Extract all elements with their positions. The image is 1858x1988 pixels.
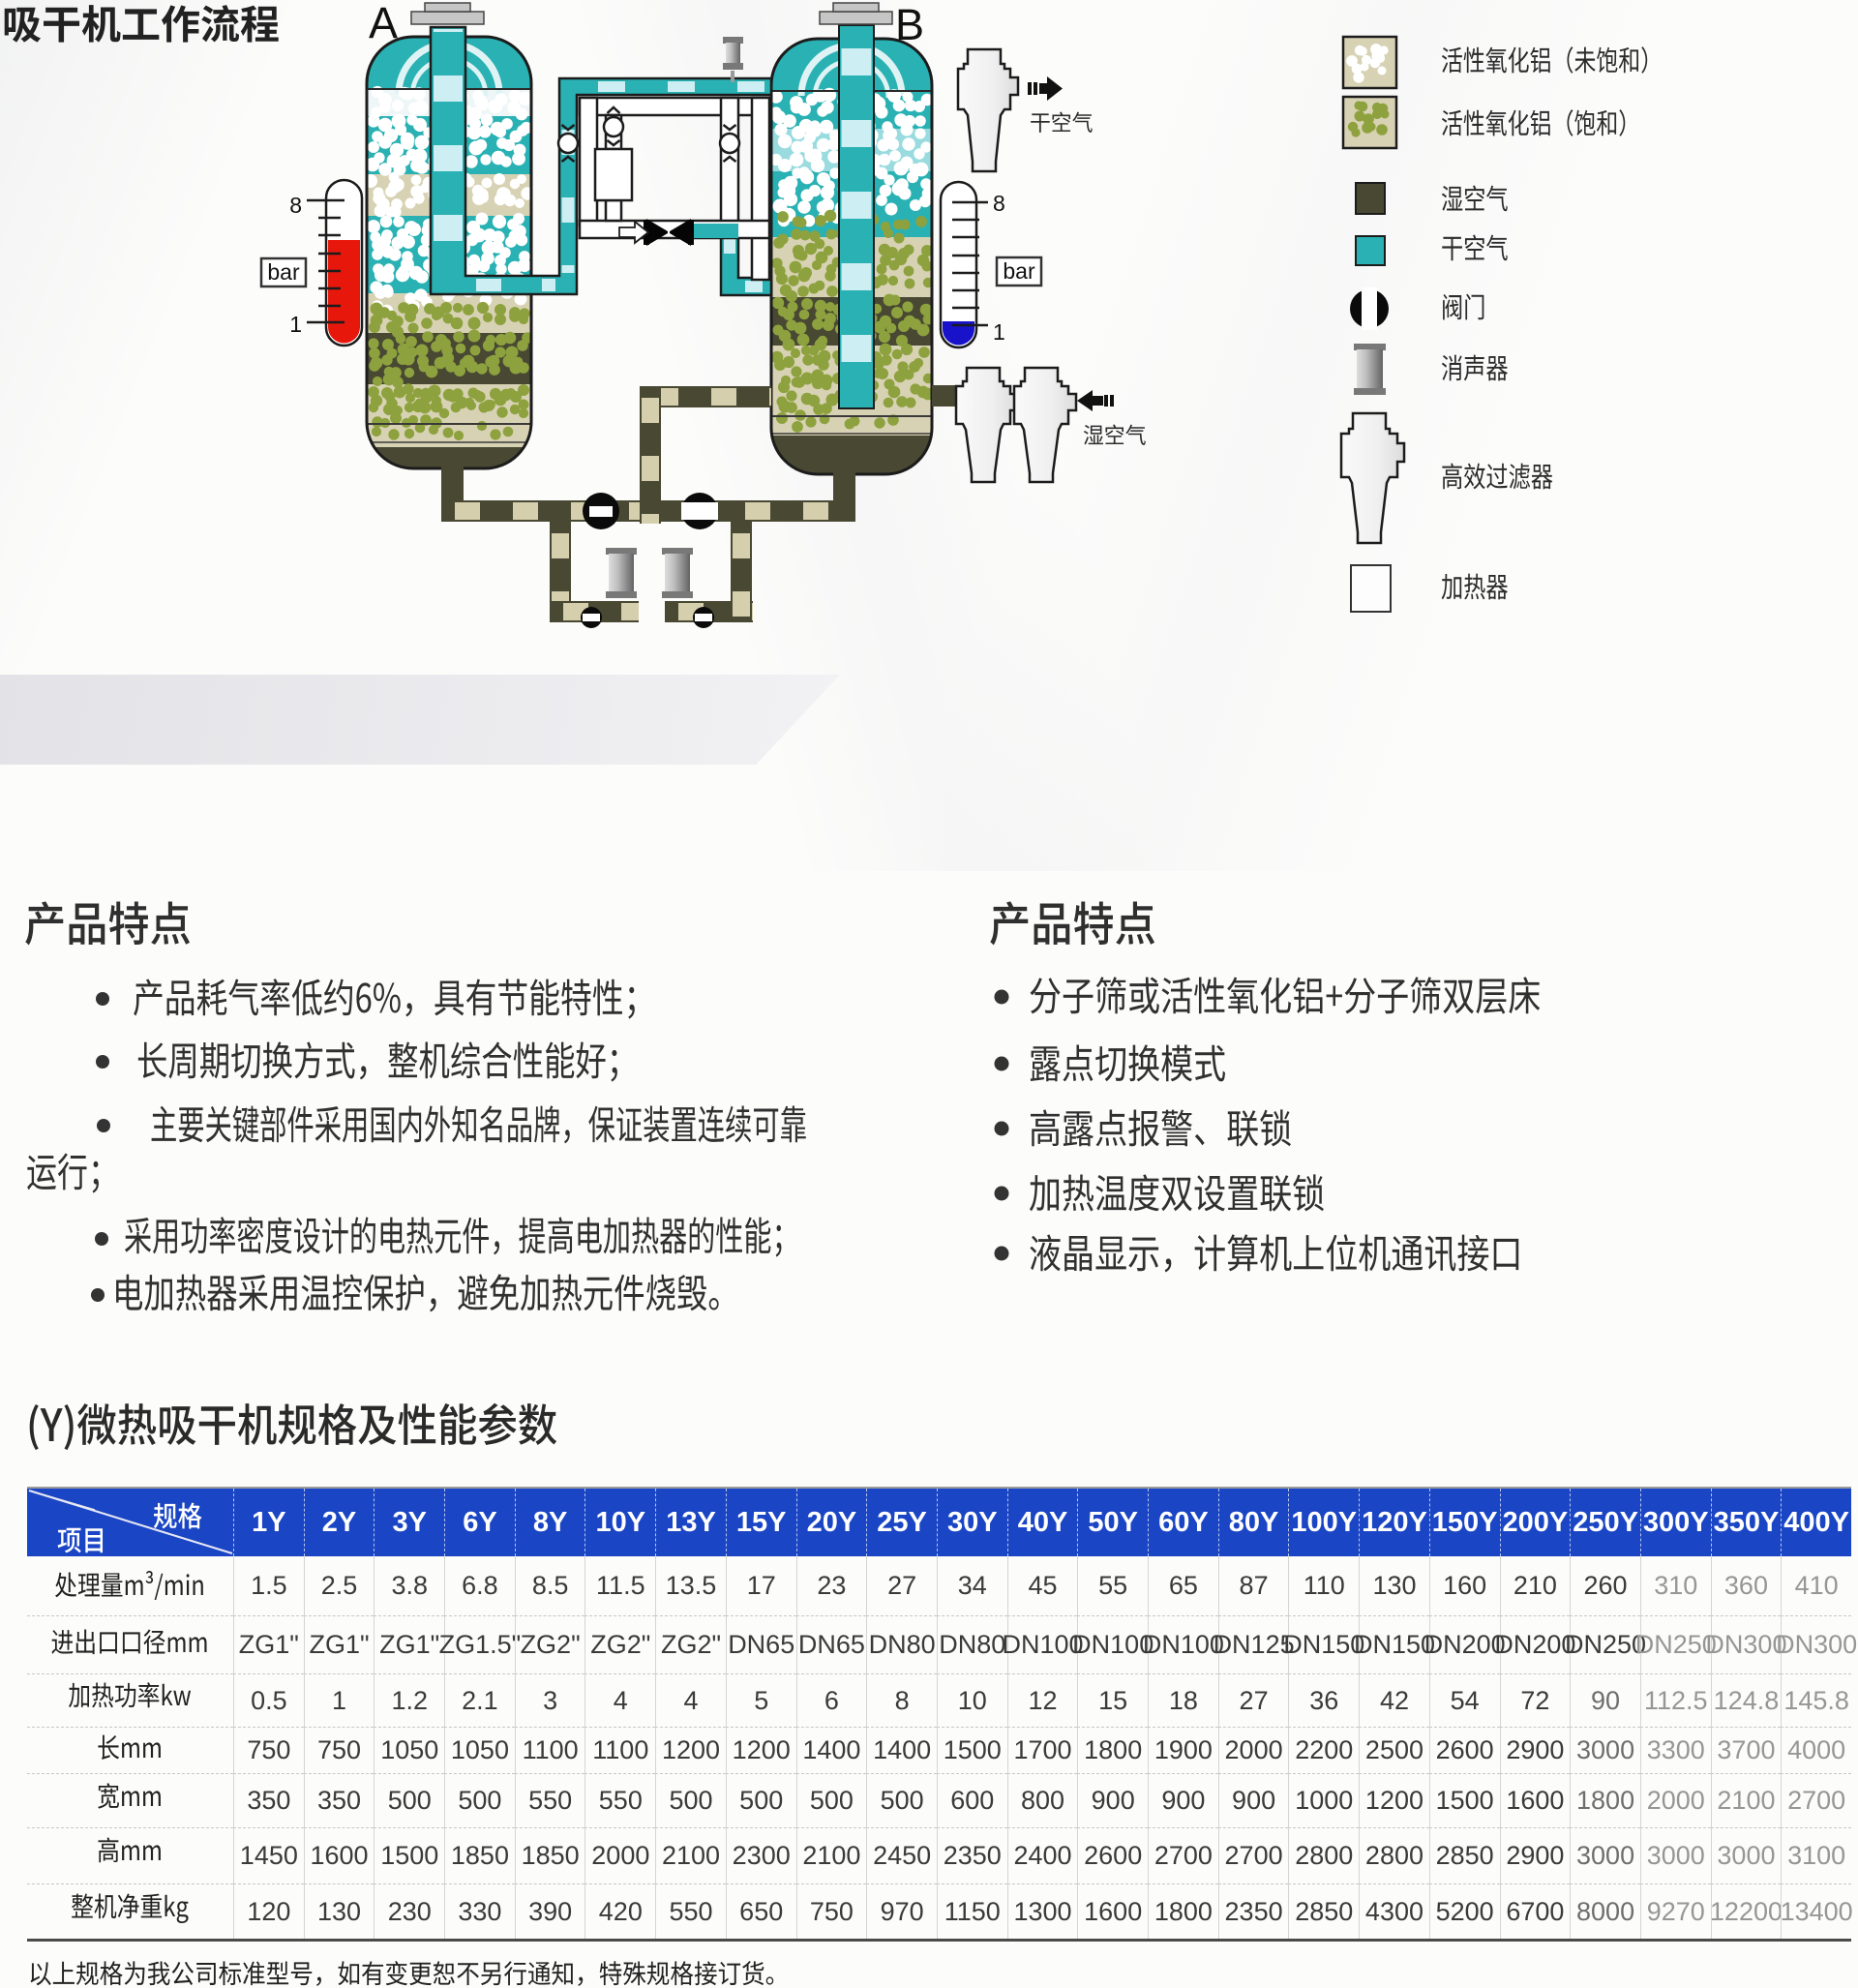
svg-text:A: A (369, 0, 398, 47)
svg-text:bar: bar (267, 259, 300, 285)
svg-text:B: B (895, 0, 924, 49)
svg-text:8: 8 (993, 191, 1005, 216)
svg-text:1: 1 (289, 312, 302, 337)
svg-text:8: 8 (289, 193, 302, 218)
svg-text:bar: bar (1003, 258, 1035, 284)
svg-text:1: 1 (993, 319, 1005, 345)
